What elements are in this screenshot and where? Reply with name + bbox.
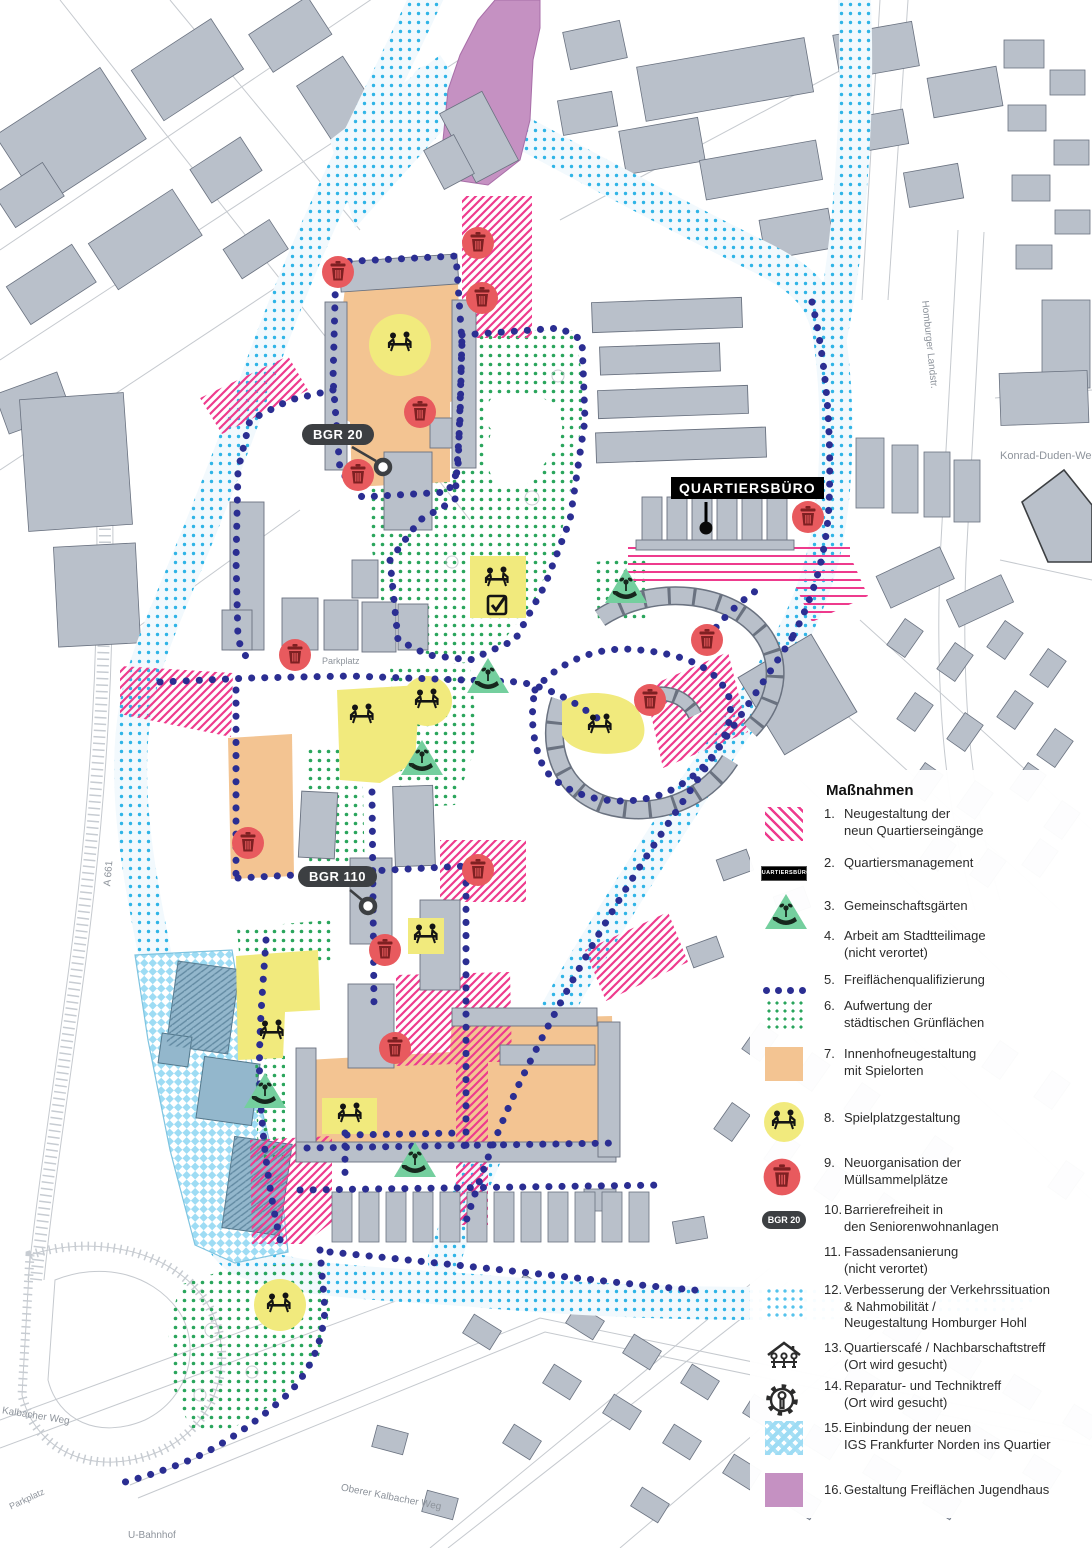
bgr110-label: BGR 110 (298, 866, 377, 887)
trash-icon (762, 1157, 802, 1197)
a661-label: A 661 (102, 860, 115, 886)
legend-swatch-navy-dots (763, 987, 806, 994)
playground-icon (762, 1100, 806, 1144)
trash-icon (466, 282, 498, 314)
legend-swatch-bgr20: BGR 20 (762, 1211, 806, 1229)
trash-icon (279, 639, 311, 671)
repair-gear-icon (762, 1380, 802, 1420)
trash-icon (634, 684, 666, 716)
trash-icon (404, 396, 436, 428)
legend-swatch-cyan-check (765, 1421, 803, 1455)
legend-swatch-cyan-dots (765, 1287, 803, 1321)
trash-icon (379, 1032, 411, 1064)
legend-swatch-purple (765, 1473, 803, 1507)
u-bahnhof-label: U-Bahnhof (128, 1530, 176, 1541)
legend-swatch-orange (765, 1047, 803, 1081)
community-garden-icon (762, 892, 810, 936)
legend-title: Maßnahmen (826, 782, 914, 799)
trash-icon (462, 227, 494, 259)
quartiersbuero-label: QUARTIERSBÜRO (671, 477, 824, 499)
trash-icon (342, 459, 374, 491)
trash-icon (691, 624, 723, 656)
legend-swatch-green-dots (765, 999, 803, 1033)
trash-icon (462, 854, 494, 886)
trash-icon (322, 256, 354, 288)
trash-icon (369, 934, 401, 966)
bgr20-label: BGR 20 (302, 424, 374, 445)
legend-panel: Maßnahmen 1. Neugestaltung der neun Quar… (750, 770, 1092, 1518)
community-garden-icon (467, 658, 509, 693)
trash-icon (232, 827, 264, 859)
trash-icon (792, 501, 824, 533)
parkplatz-label: Parkplatz (322, 656, 360, 666)
urban-plan-map: QUARTIERSBÜRO BGR 20 BGR 110 Parkplatz P… (0, 0, 1092, 1548)
legend-swatch-quartiersbuero: QUARTIERSBÜRO (761, 866, 807, 881)
legend-swatch-pink-hatch (765, 807, 803, 841)
neighbourhood-cafe-icon (762, 1340, 806, 1374)
konrad-duden-weg-label: Konrad-Duden-Weg (1000, 450, 1092, 462)
